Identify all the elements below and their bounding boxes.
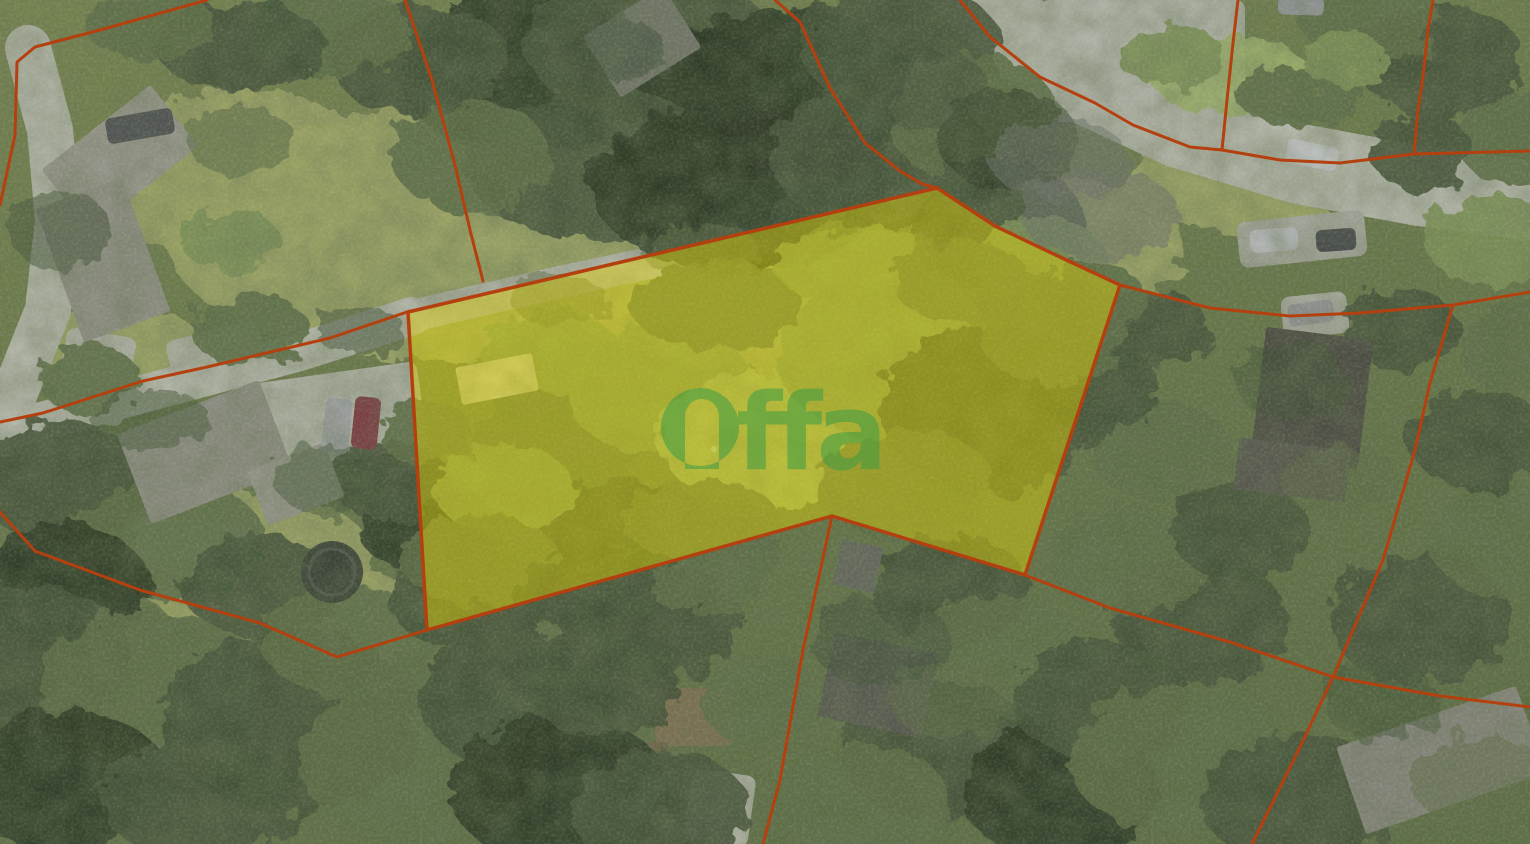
watermark-door-handle-icon [711,446,717,452]
map-viewport[interactable]: ffa [0,0,1530,844]
aerial-map-canvas[interactable]: ffa [0,0,1530,844]
watermark-text: ffa [736,371,882,494]
